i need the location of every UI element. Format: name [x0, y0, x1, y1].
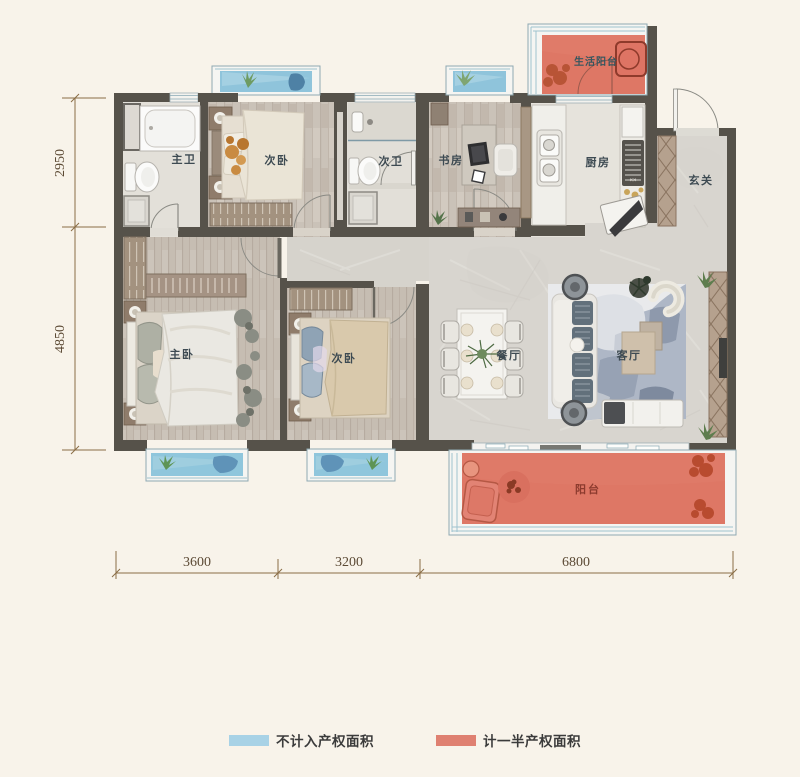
svg-text:书房: 书房	[439, 153, 464, 167]
svg-text:××: ××	[629, 178, 637, 184]
svg-text:2950: 2950	[53, 149, 68, 177]
svg-text:玄关: 玄关	[689, 173, 714, 187]
svg-text:6800: 6800	[562, 555, 590, 570]
svg-text:主卫: 主卫	[172, 152, 197, 166]
svg-text:餐厅: 餐厅	[496, 348, 522, 362]
svg-text:4850: 4850	[53, 325, 68, 353]
svg-text:次卫: 次卫	[379, 154, 404, 168]
svg-text:计一半产权面积: 计一半产权面积	[483, 733, 581, 749]
svg-text:不计入产权面积: 不计入产权面积	[276, 733, 374, 749]
svg-text:客厅: 客厅	[616, 348, 642, 362]
svg-text:生活阳台: 生活阳台	[574, 55, 618, 68]
svg-text:主卧: 主卧	[170, 347, 195, 361]
svg-text:次卧: 次卧	[265, 153, 290, 167]
svg-text:3600: 3600	[183, 555, 211, 570]
svg-text:厨房: 厨房	[586, 155, 611, 169]
svg-text:阳台: 阳台	[575, 482, 601, 496]
svg-text:3200: 3200	[335, 555, 363, 570]
svg-text:次卧: 次卧	[332, 351, 357, 365]
